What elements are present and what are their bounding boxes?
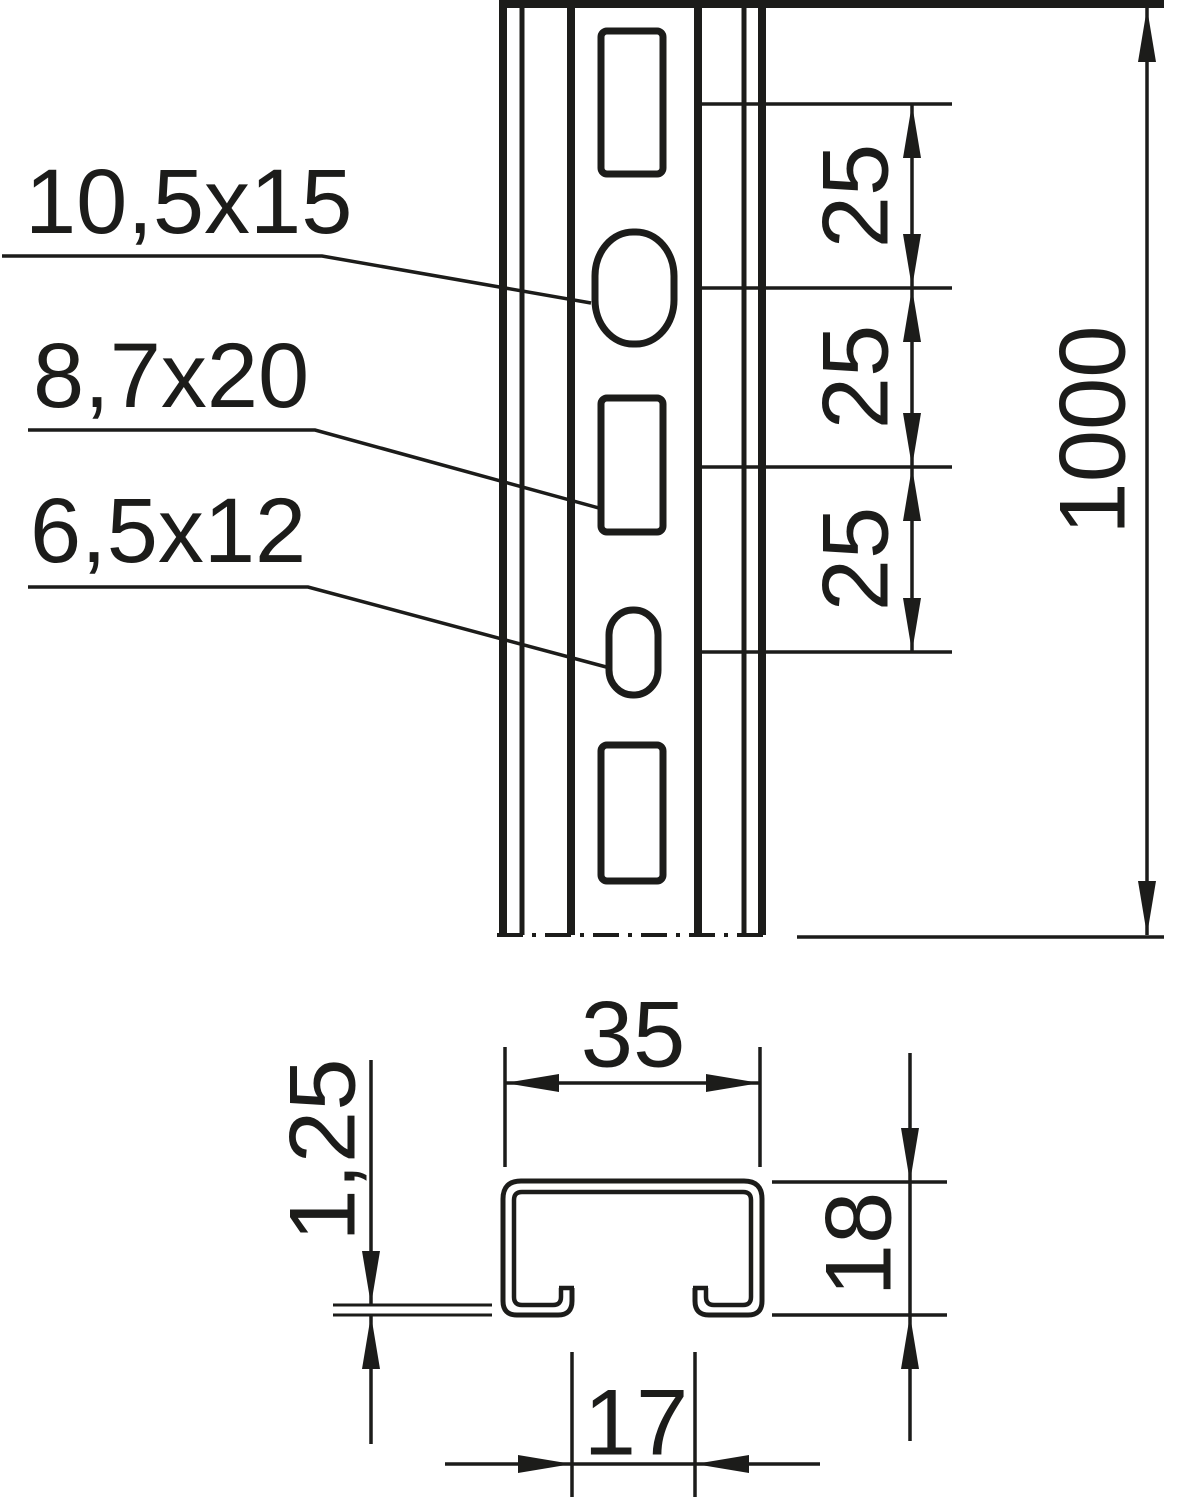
pitch-dimension-label-3: 25 [803, 507, 908, 612]
thickness-arrowheads [362, 1251, 380, 1369]
height-label: 18 [806, 1192, 911, 1297]
slot-size-label-1: 10,5x15 [25, 151, 352, 253]
slot-rect-bottom [601, 745, 663, 881]
pitch-dimension-label-1: 25 [803, 144, 908, 249]
pitch-dimension-label-2: 25 [803, 325, 908, 430]
technical-drawing-profile-rail: 10,5x15 8,7x20 6,5x12 25 25 25 1000 [0, 0, 1183, 1500]
front-view [2, 2, 1164, 937]
slot-size-label-2: 8,7x20 [33, 325, 309, 427]
profile-inner-contour [514, 1192, 751, 1305]
profile-width-label: 35 [581, 982, 686, 1087]
opening-label: 17 [584, 1370, 689, 1475]
drawing-svg: 10,5x15 8,7x20 6,5x12 25 25 25 1000 [0, 0, 1183, 1500]
profile-outer-contour [503, 1181, 762, 1315]
slot-rect-middle [601, 398, 663, 532]
slot-obround-6-5x12 [609, 610, 658, 695]
slot-size-label-3: 6,5x12 [30, 480, 306, 582]
thickness-label: 1,25 [270, 1059, 375, 1242]
length-dimension-label: 1000 [1040, 325, 1145, 534]
slot-oval-10-5x15 [595, 232, 674, 344]
slot-rect-top [601, 31, 663, 174]
